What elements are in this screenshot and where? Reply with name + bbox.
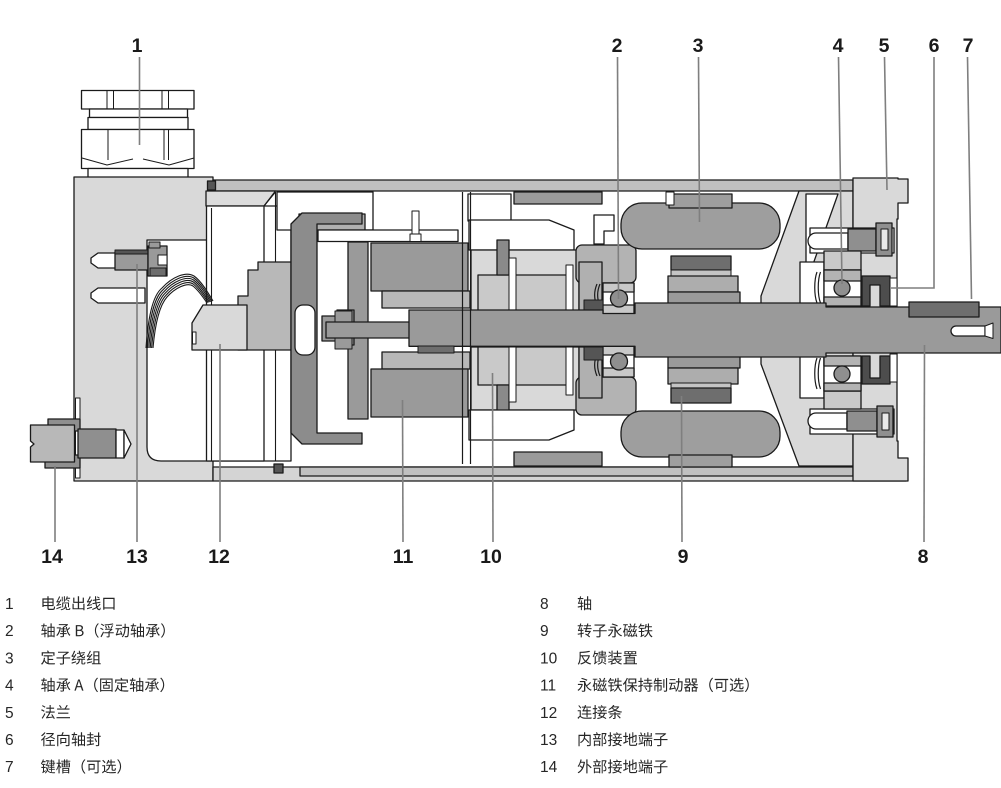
svg-text:10: 10 (480, 546, 502, 568)
svg-text:8: 8 (918, 546, 929, 568)
svg-text:9: 9 (678, 546, 689, 568)
svg-text:12: 12 (540, 705, 557, 722)
svg-text:9: 9 (540, 623, 549, 640)
svg-text:7: 7 (5, 759, 14, 776)
svg-text:5: 5 (5, 705, 14, 722)
svg-text:3: 3 (5, 650, 14, 667)
svg-text:5: 5 (879, 35, 890, 57)
svg-text:11: 11 (540, 678, 556, 695)
svg-text:4: 4 (833, 35, 844, 57)
svg-text:13: 13 (540, 732, 557, 749)
svg-text:8: 8 (540, 596, 549, 613)
svg-text:3: 3 (693, 35, 704, 57)
svg-text:10: 10 (540, 650, 558, 667)
svg-text:4: 4 (5, 678, 14, 695)
svg-text:6: 6 (929, 35, 940, 57)
svg-text:11: 11 (393, 546, 414, 568)
svg-text:13: 13 (126, 546, 148, 568)
svg-text:14: 14 (41, 546, 63, 568)
svg-text:1: 1 (5, 596, 14, 613)
svg-text:2: 2 (5, 623, 14, 640)
svg-text:12: 12 (208, 546, 230, 568)
svg-text:7: 7 (963, 35, 974, 57)
svg-text:14: 14 (540, 759, 558, 776)
svg-text:1: 1 (132, 35, 143, 57)
svg-text:6: 6 (5, 732, 14, 749)
svg-text:2: 2 (612, 35, 623, 57)
